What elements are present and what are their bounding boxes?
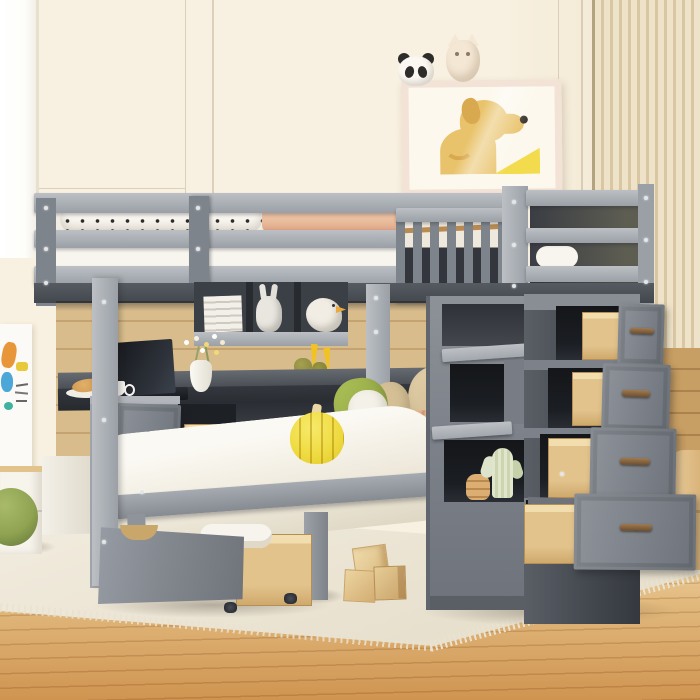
rail-divider-post [189,196,209,288]
bolt [374,330,378,334]
wooden-blocks [342,540,408,604]
bolt [512,243,516,247]
caster-wheel [284,593,297,604]
flower-dots [184,340,189,345]
poster-scribble [16,383,28,387]
bolt [44,281,48,285]
seagull-figurine [306,298,342,332]
spindle-top-bar [396,208,514,222]
bolt [512,200,516,204]
kids-poster [0,324,32,470]
bolt [140,490,144,494]
bolt [196,206,200,210]
poster-scribble [16,400,27,402]
bolt [374,296,378,300]
seagull-eye [332,304,335,307]
panda-head [398,56,434,86]
poster-scribble [15,391,28,394]
hanging-shelf-unit [194,282,348,346]
cabinet-wood-edge [0,466,42,472]
bolt [102,540,106,544]
staircase-front [426,296,534,610]
wood-block [373,565,406,600]
caster-wheel [224,602,237,613]
pumpkin-body [290,412,344,464]
art-glass-sheen [409,86,542,175]
poster-doodle [1,372,13,392]
bolt [44,247,48,251]
panda-plush [398,56,434,86]
drawer-handle[interactable] [620,524,652,532]
cup-handle [124,384,135,396]
bolt [512,284,516,288]
window-light [0,0,39,258]
bolt [102,300,106,304]
underbed-drawer-front[interactable] [98,524,244,604]
bedroom-product-photo [0,0,700,700]
white-book-stack [203,295,242,332]
bolt [644,238,648,242]
bolt [102,418,106,422]
stair-bottom-edge [430,596,534,610]
stair-cubby-cactus [444,440,526,502]
stair-upper-opening [442,304,524,346]
stair-drawer-front-1[interactable] [617,303,665,366]
bolt [560,472,564,476]
pumpkin-plush [290,412,344,464]
bolt [644,280,648,284]
shelf-divider [294,282,301,332]
white-pillow-peek [536,246,578,268]
cactus-plush [492,448,513,498]
shelf-divider [246,282,253,332]
bolt [644,196,648,200]
stair-rail-bar [526,228,640,243]
poster-doodle [16,362,28,371]
drawer-handle[interactable] [630,328,654,335]
bunny-figurine [256,296,282,332]
wall-seam [185,0,186,196]
owl-eye [455,52,459,56]
spindles [396,220,514,286]
bolt [44,206,48,210]
stair-step-tread[interactable] [432,421,513,440]
bolt [196,247,200,251]
stair-cubby [450,364,504,422]
shelf-bottom-board [194,332,348,346]
stair-rail-bar [526,266,640,282]
wall-art-group [396,36,556,186]
stair-drawer-front-2[interactable] [601,363,671,433]
bunny-ear [259,284,267,301]
owl-body [446,40,480,82]
poster-doodle [4,402,13,410]
stair-drawer-front-3[interactable] [589,427,676,502]
stair-rail-bar [526,190,640,206]
wood-block [343,569,377,603]
underbed-drawer[interactable] [96,516,320,616]
owl-plush [446,38,480,82]
drawer-handle[interactable] [620,458,650,466]
stair-drawer-front-4[interactable] [574,493,697,570]
owl-eye [466,52,470,56]
drawer-handle[interactable] [622,390,650,398]
